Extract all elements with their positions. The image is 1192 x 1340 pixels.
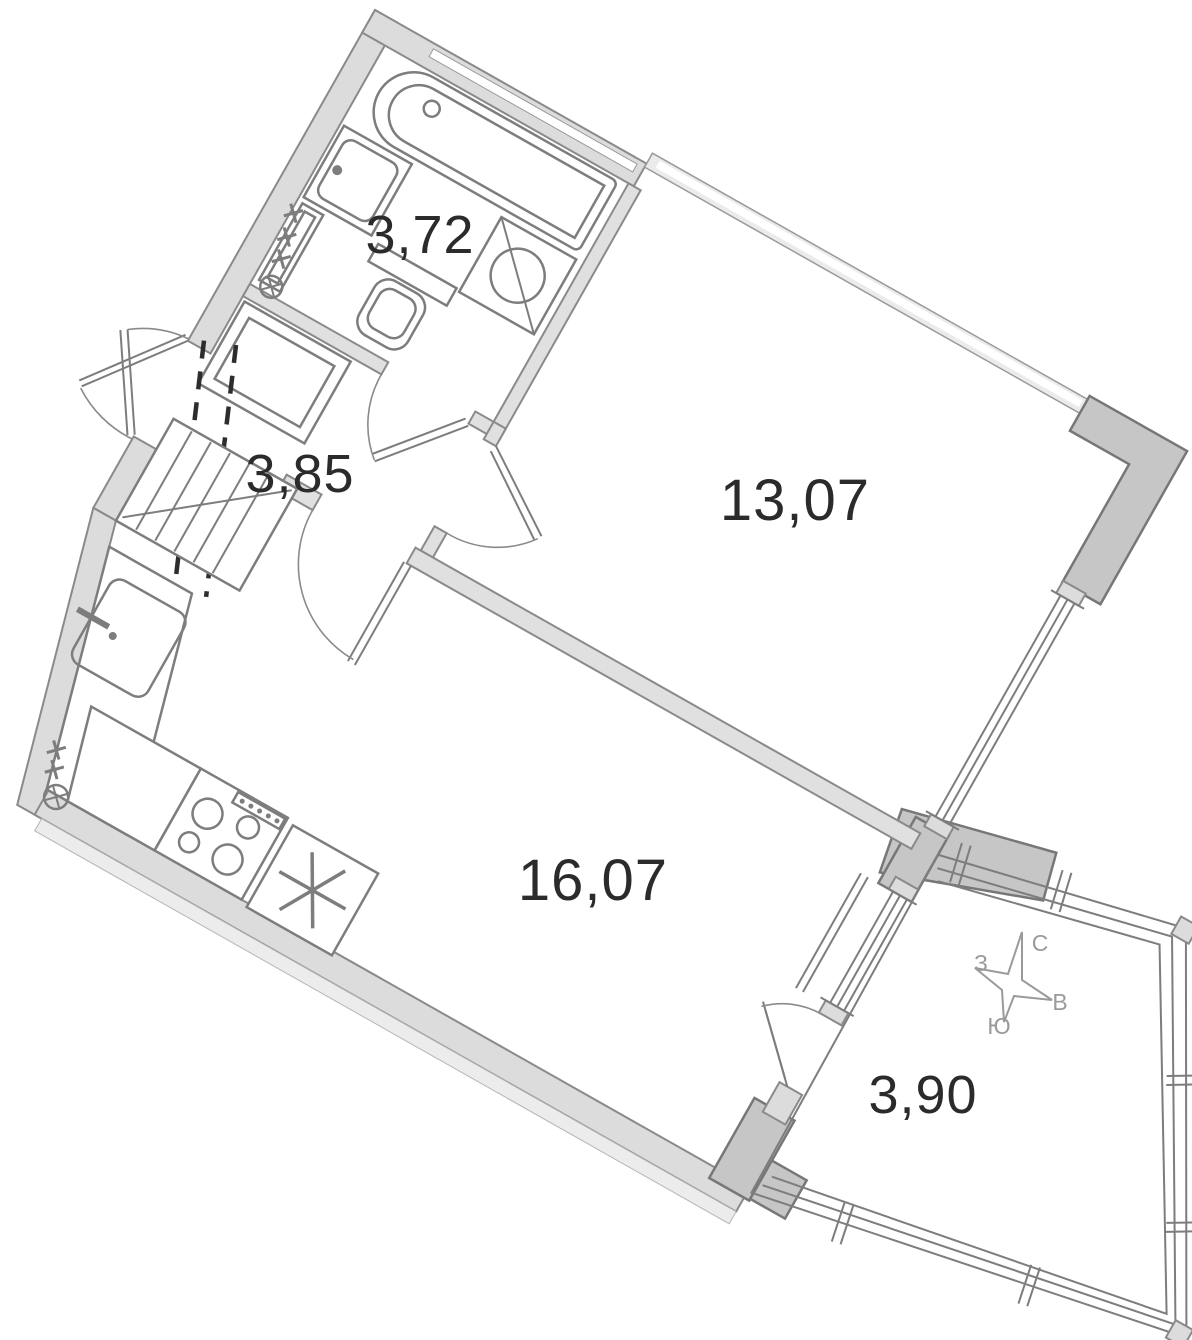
balcony-door <box>732 986 826 1087</box>
top-right-pilaster <box>1003 396 1187 604</box>
party-wall-gap <box>656 161 1083 407</box>
living-room-area-label: 13,07 <box>720 468 870 533</box>
compass-west-label: З <box>974 950 988 976</box>
balcony-glazing <box>771 834 1192 1340</box>
living-room-window <box>919 578 1091 842</box>
glazing-corner-post <box>1171 916 1192 943</box>
compass-south-label: Ю <box>987 1013 1010 1039</box>
floor-plan-canvas: 3,72 3,85 13,07 16,07 3,90 С В Ю З <box>0 0 1192 1340</box>
compass-rose: С В Ю З <box>974 930 1068 1039</box>
apartment-plan <box>0 0 1192 1340</box>
entry-door <box>67 300 190 439</box>
bathroom-area-label: 3,72 <box>365 205 474 265</box>
compass-east-label: В <box>1052 989 1067 1015</box>
hallway-area-label: 3,85 <box>245 444 354 504</box>
living-room-door <box>445 445 569 574</box>
window-sill-line <box>796 873 861 988</box>
balcony-area-label: 3,90 <box>868 1065 977 1125</box>
room-kitchen-dividing-wall <box>407 548 921 849</box>
floor-plan-page: 3,72 3,85 13,07 16,07 3,90 С В Ю З <box>0 0 1192 1340</box>
compass-north-label: С <box>1032 930 1049 956</box>
bathroom-door <box>342 372 470 493</box>
kitchen-area-label: 16,07 <box>518 848 668 913</box>
kitchen-door <box>257 510 411 665</box>
window-sill-line <box>803 877 868 992</box>
